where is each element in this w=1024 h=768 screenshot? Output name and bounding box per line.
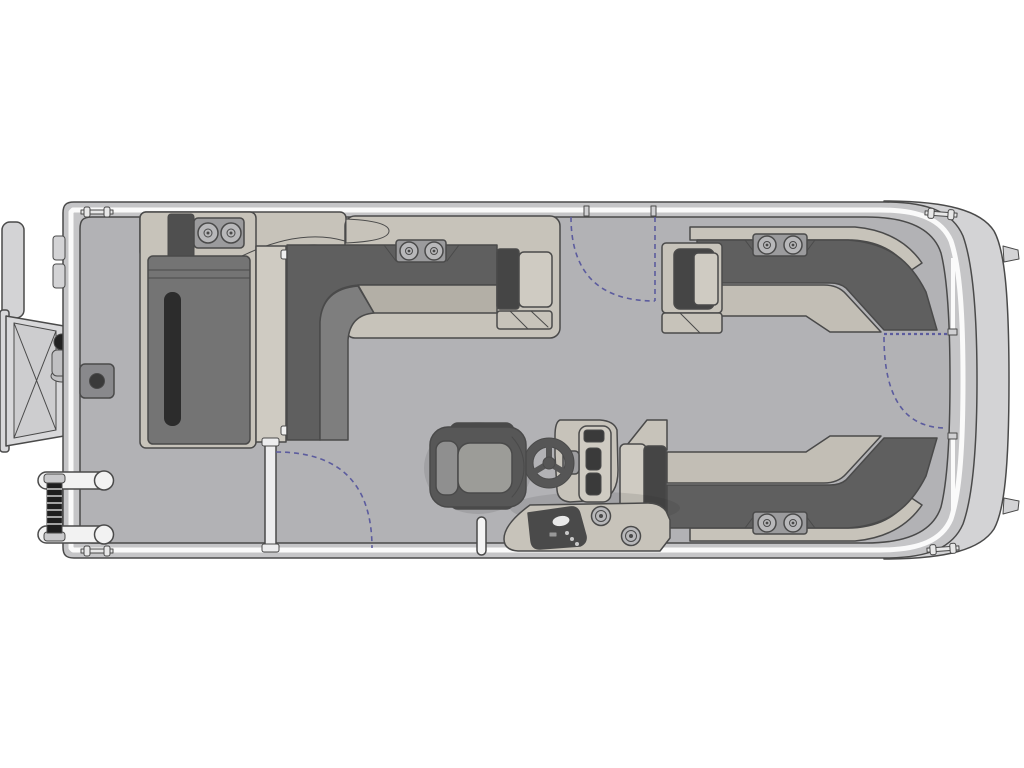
- bow-port-armrest-pad: [694, 253, 718, 305]
- steering-wheel: [524, 438, 574, 488]
- lounge-accent-stripe: [164, 292, 181, 426]
- transom-bracket-bottom: [53, 264, 65, 288]
- gate-hinge: [584, 206, 589, 216]
- port-armrest-skirt: [497, 311, 552, 329]
- button: [575, 542, 580, 547]
- ladder-spring: [47, 483, 62, 533]
- gate-hinge: [262, 544, 279, 552]
- port-armrest-panel: [497, 249, 519, 309]
- captains-chair: [430, 423, 526, 509]
- ladder-flange-top: [95, 471, 114, 490]
- fuel-cap: [80, 364, 114, 398]
- ladder-flange-bottom: [95, 525, 114, 544]
- bow-fender-tab-top: [1003, 246, 1019, 262]
- chair-backrest: [436, 441, 458, 495]
- grab-post: [477, 517, 486, 555]
- motor-bracket: [2, 222, 24, 318]
- switch: [549, 532, 557, 537]
- stern-lounge-cushion: [148, 256, 250, 444]
- floorplan-canvas: [0, 0, 1024, 768]
- dash-vent: [584, 430, 604, 442]
- ladder-cap-top: [44, 474, 65, 483]
- chair-seat: [458, 443, 512, 493]
- button: [570, 537, 575, 542]
- gate-hinge: [262, 438, 279, 446]
- button: [565, 531, 570, 536]
- walkthrough-base: [256, 246, 286, 442]
- transom-bracket-top: [53, 236, 65, 260]
- bow-gate-hinge-top: [948, 329, 957, 335]
- pontoon-floorplan-diagram: [0, 0, 1024, 768]
- starboard-gate-panel: [265, 444, 276, 546]
- bow-port-armrest-skirt: [662, 313, 722, 333]
- bow-gate-hinge-bottom: [948, 433, 957, 439]
- wheel-hub: [543, 457, 555, 469]
- gate-hinge: [651, 206, 656, 216]
- dash-gauge: [586, 473, 601, 495]
- port-armrest-pad: [519, 252, 552, 307]
- fuel-cap-cap: [90, 374, 105, 389]
- port-bench-seat-cushion: [358, 285, 497, 313]
- dash-gauge: [586, 448, 601, 470]
- bow-fender-tab-bottom: [1003, 498, 1019, 514]
